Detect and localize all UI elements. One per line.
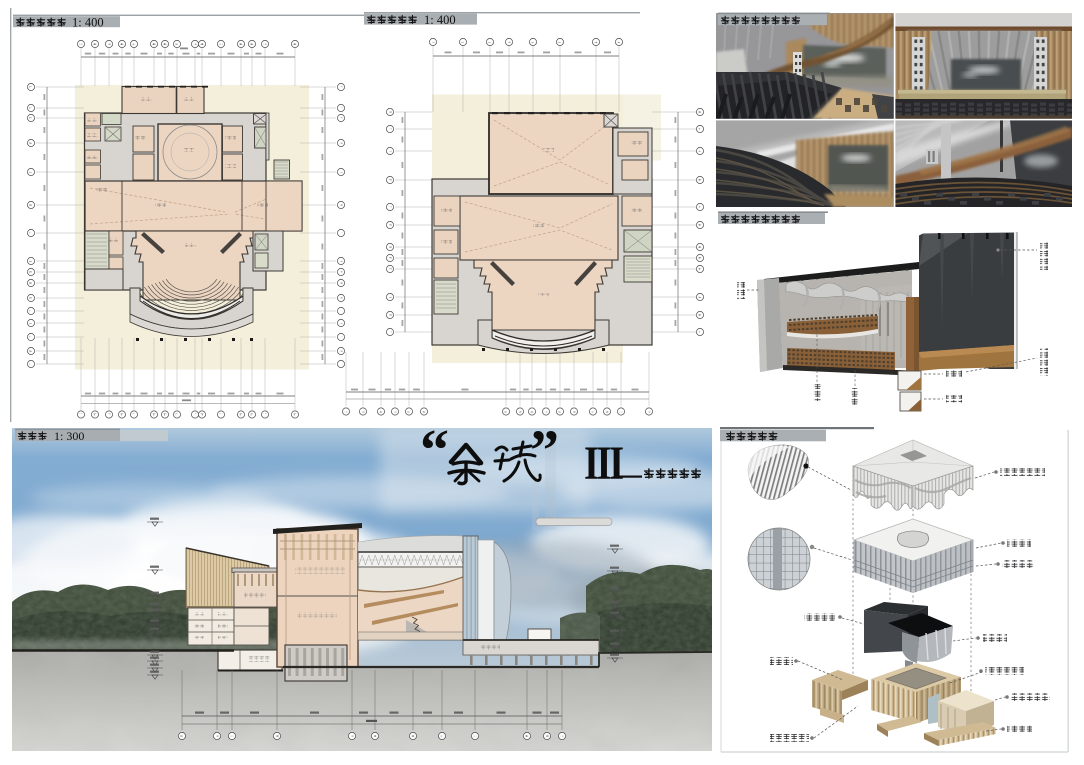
svg-text:1: 300: 1: 300 xyxy=(54,429,84,443)
svg-text:III: III xyxy=(584,437,623,490)
svg-text:1: 400: 1: 400 xyxy=(72,16,104,30)
svg-text:“: “ xyxy=(420,417,449,482)
svg-text:”: ” xyxy=(530,418,559,483)
svg-text:1: 400: 1: 400 xyxy=(424,13,456,27)
